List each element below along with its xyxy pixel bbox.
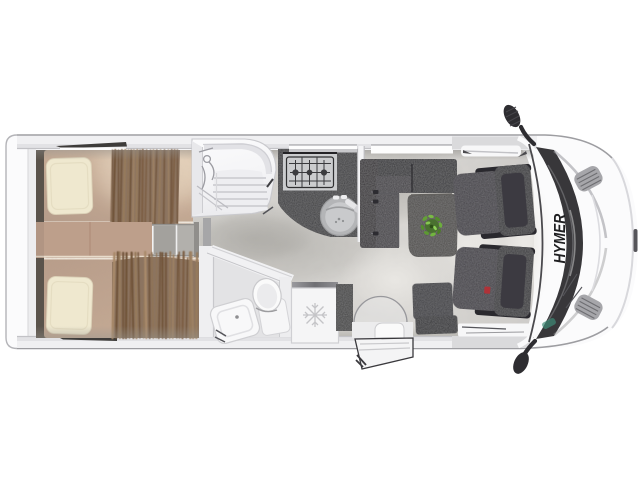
svg-text:HYMER: HYMER <box>551 214 569 264</box>
